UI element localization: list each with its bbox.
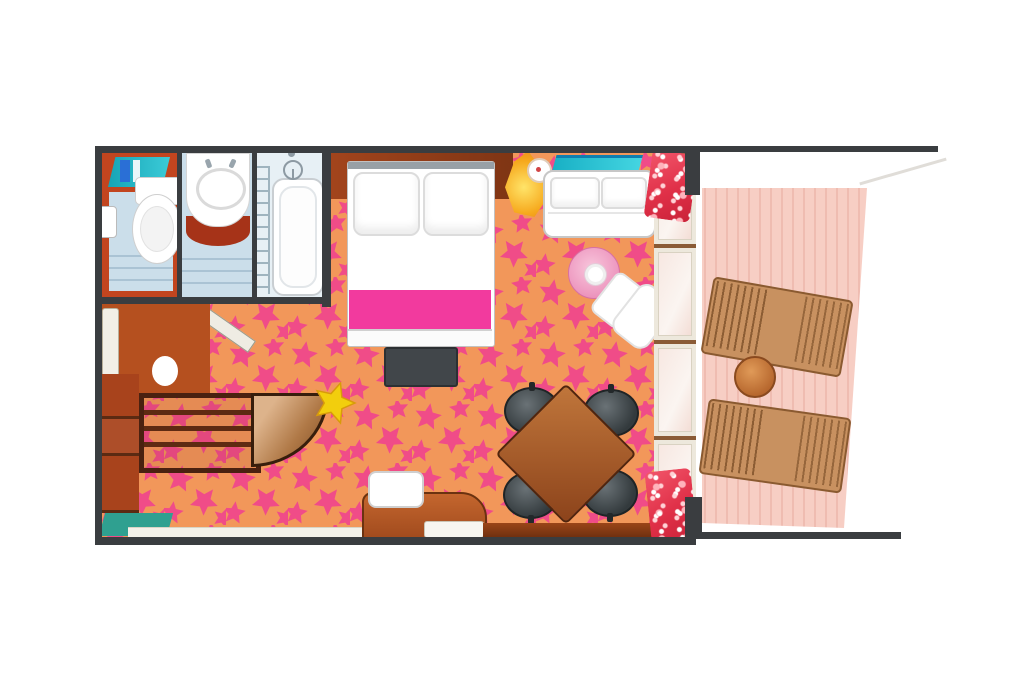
wall-balcony-top — [696, 146, 938, 152]
wall-bottom — [95, 537, 696, 545]
wall-glass-stub-bottom — [685, 497, 702, 537]
walls — [0, 0, 1024, 683]
wall-bathroom-bottom — [95, 297, 331, 304]
wall-bath-divider — [177, 150, 182, 301]
wall-balcony-bottom — [696, 532, 901, 539]
wall-top — [95, 146, 696, 153]
wall-left — [95, 146, 102, 545]
wall-bathroom-right — [322, 146, 331, 307]
wall-bath-divider — [252, 150, 257, 301]
wall-glass-stub-top — [685, 150, 700, 195]
